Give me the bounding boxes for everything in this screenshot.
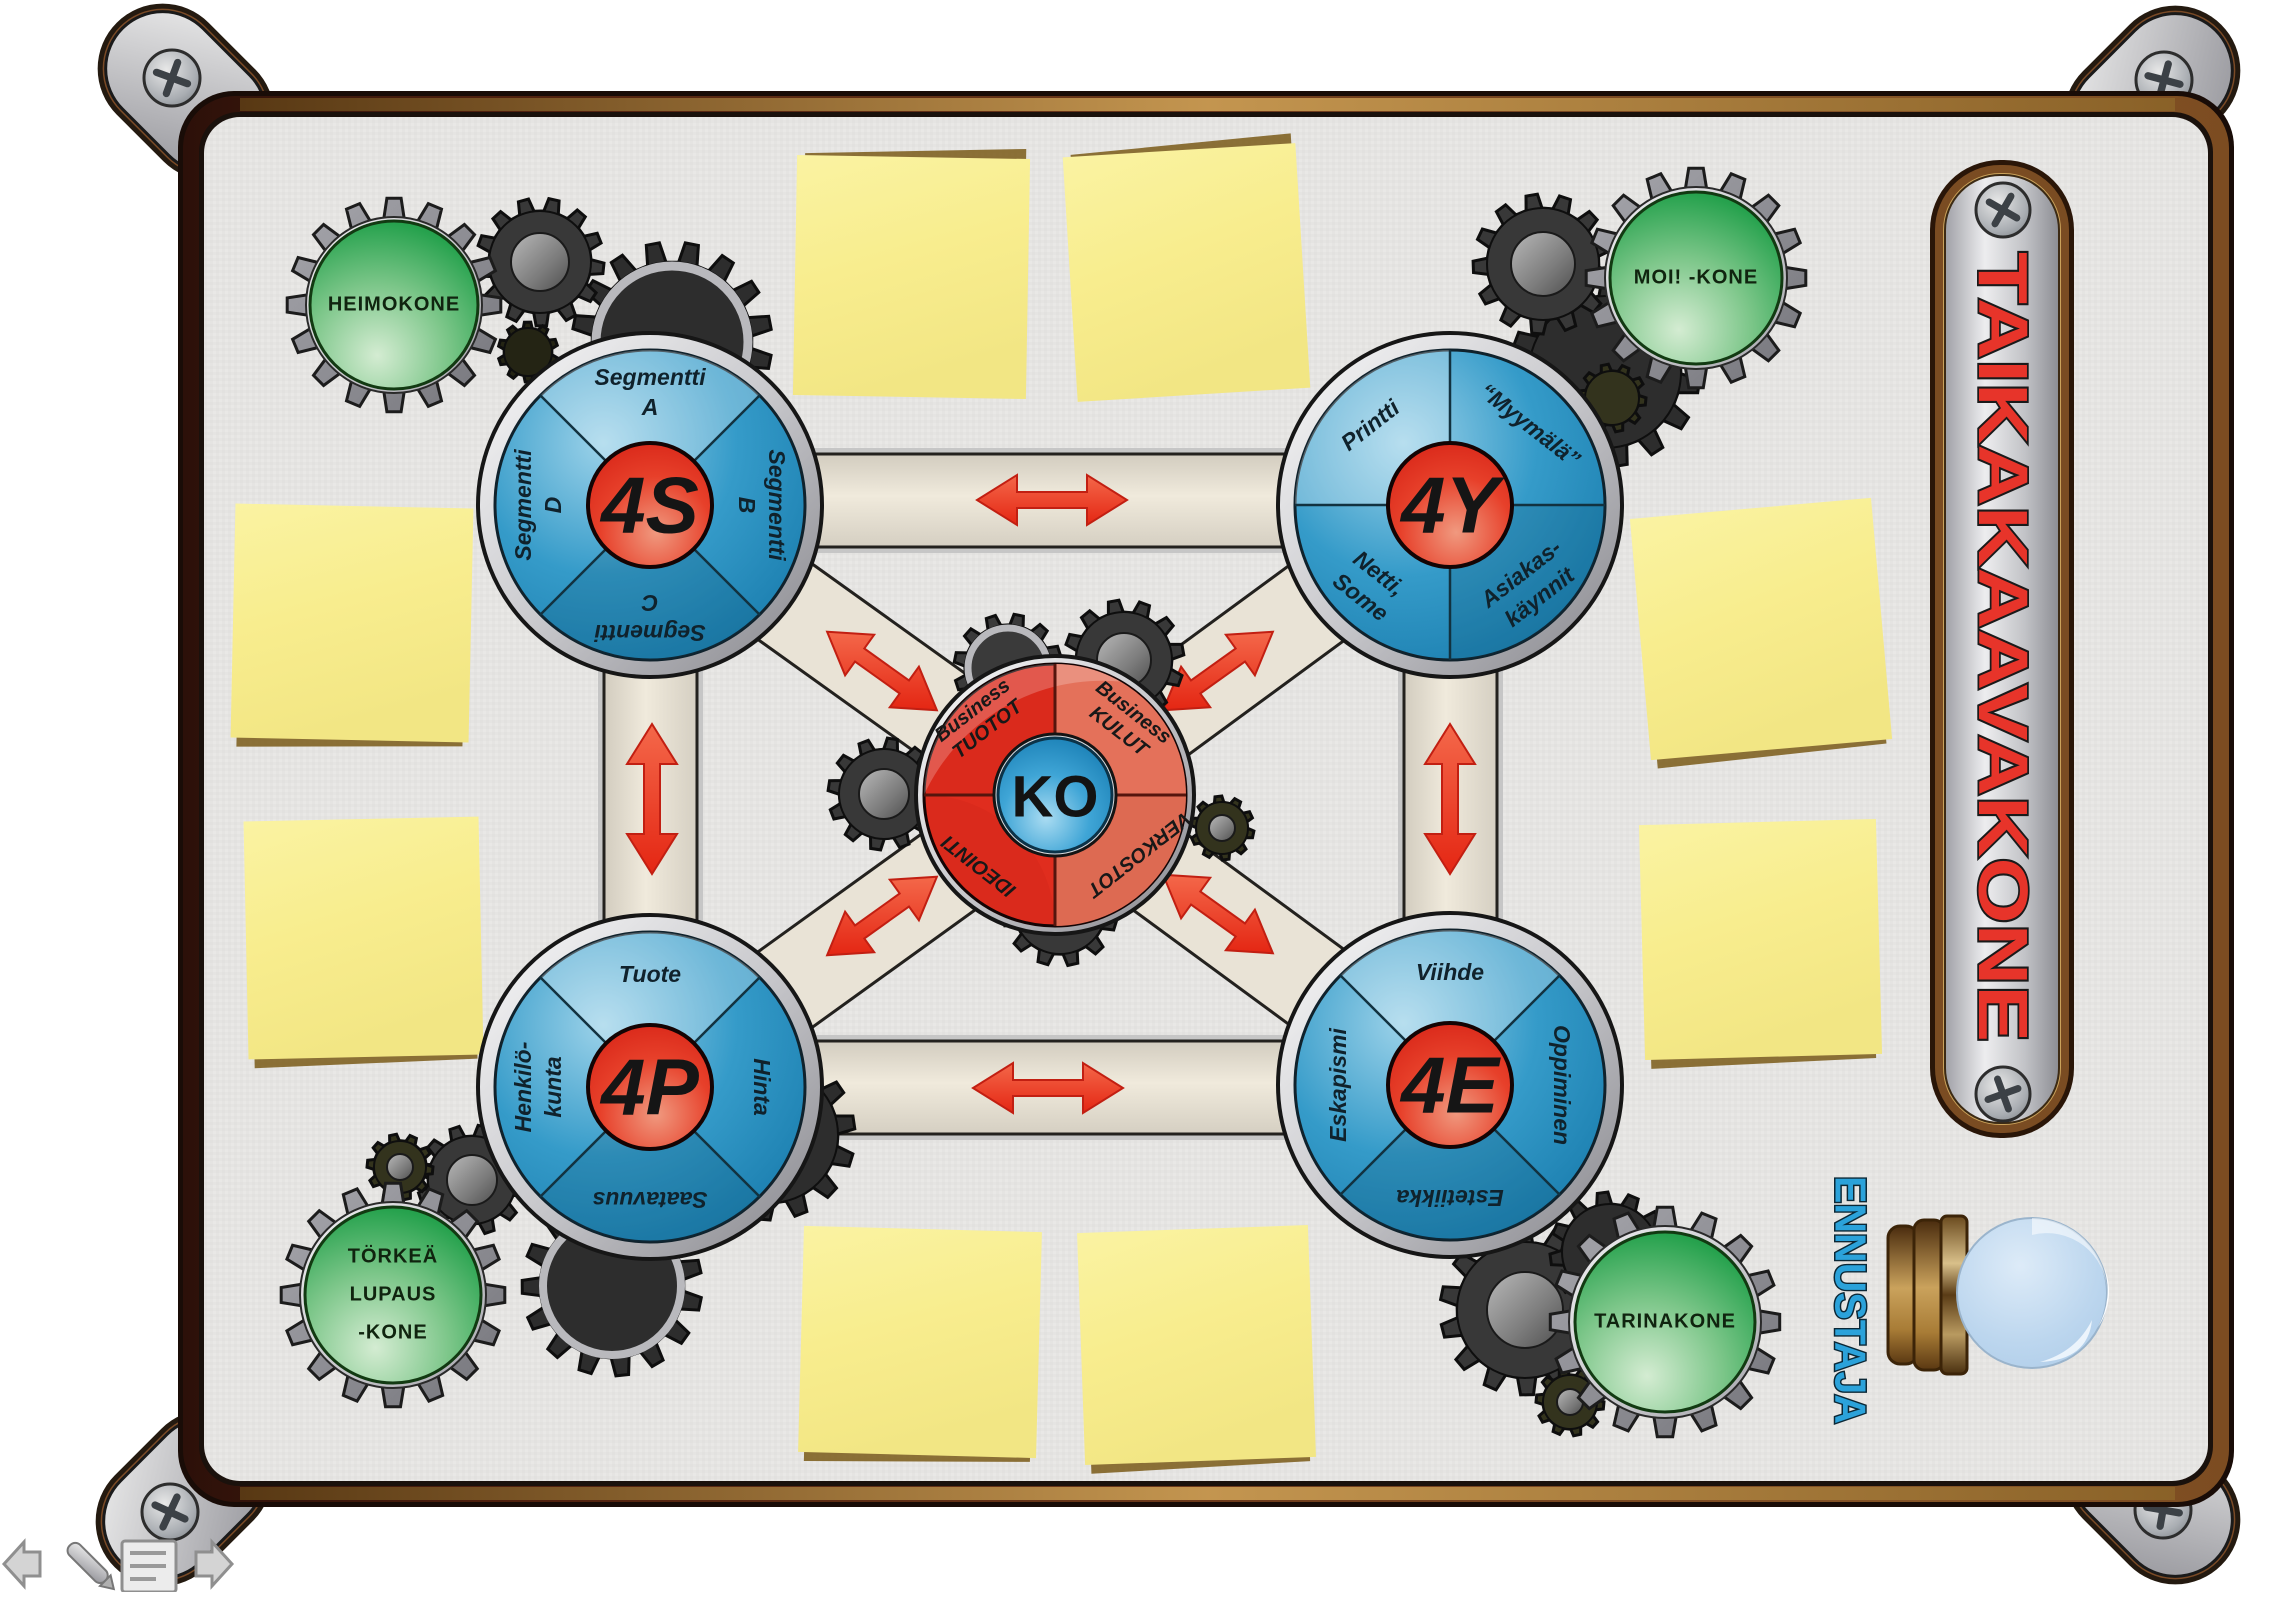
svg-text:Segmentti: Segmentti [510,449,536,561]
svg-text:Segmentti: Segmentti [594,620,706,646]
svg-text:-KONE: -KONE [358,1321,427,1343]
svg-text:Estetiikka: Estetiikka [1396,1185,1504,1211]
svg-text:Tuote: Tuote [619,961,681,987]
svg-text:Saatavuus: Saatavuus [592,1187,707,1213]
svg-text:KO: KO [1012,765,1099,830]
svg-text:4S: 4S [599,461,699,550]
svg-text:HEIMOKONE: HEIMOKONE [328,293,460,315]
svg-text:LUPAUS: LUPAUS [350,1283,437,1305]
svg-text:Hinta: Hinta [749,1058,775,1116]
svg-text:Eskapismi: Eskapismi [1325,1028,1351,1142]
svg-text:D: D [540,497,566,514]
svg-text:A: A [641,394,659,420]
svg-text:4Y: 4Y [1399,461,1505,550]
svg-text:TÖRKEÄ: TÖRKEÄ [348,1244,438,1267]
svg-text:ENNUSTAJA: ENNUSTAJA [1826,1176,1875,1424]
svg-text:B: B [734,497,760,514]
svg-text:TARINAKONE: TARINAKONE [1594,1310,1736,1332]
svg-text:C: C [641,590,658,616]
svg-text:4P: 4P [599,1043,699,1132]
svg-text:Oppiminen: Oppiminen [1549,1025,1575,1145]
svg-text:Segmentti: Segmentti [764,449,790,561]
svg-text:MOI! -KONE: MOI! -KONE [1634,266,1758,288]
svg-text:Segmentti: Segmentti [594,364,706,390]
svg-text:Viihde: Viihde [1416,959,1484,985]
svg-text:TAIKAKAAVAKONE: TAIKAKAAVAKONE [1964,252,2042,1042]
svg-text:Henkilö-: Henkilö- [510,1042,536,1133]
svg-text:kunta: kunta [540,1056,566,1118]
svg-text:4E: 4E [1399,1041,1501,1130]
